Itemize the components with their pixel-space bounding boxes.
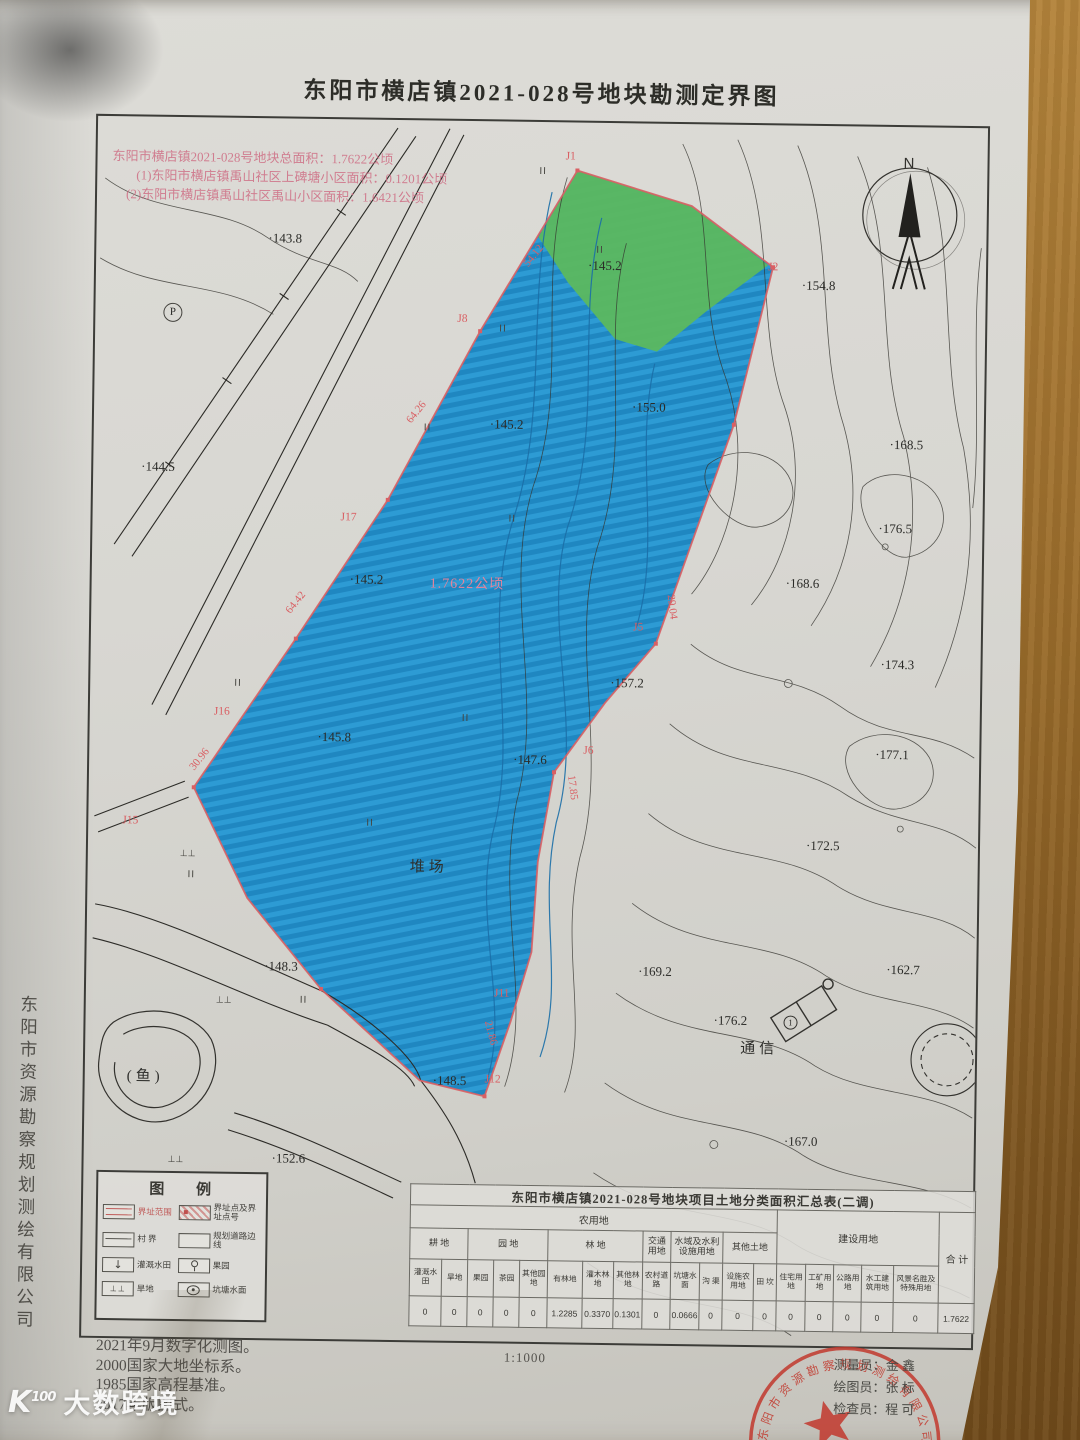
table-column-header: 灌溉水田 [409, 1259, 442, 1296]
map-label: ·176.5 [878, 521, 912, 537]
plot-area-notes: 东阳市横店镇2021-028号地块总面积：1.7622公顷(1)东阳市横店镇禹山… [112, 146, 583, 210]
table-value-cell: 0.3370 [581, 1298, 613, 1328]
table-column-header: 工矿用地 [805, 1264, 834, 1301]
map-label: II [187, 869, 195, 880]
map-label: 1 [783, 1015, 797, 1029]
land-classification-table: 东阳市横店镇2021-028号地块项目土地分类面积汇总表(二调) 农用地 建设用… [408, 1183, 976, 1334]
legend-item-label: 界址点及界址点号 [213, 1204, 261, 1223]
map-label: J5 [633, 621, 643, 633]
document-content: 东阳市横店镇2021-028号地块勘测定界图 东阳市资源勘察规划测绘有限公司 [0, 0, 1080, 1440]
photo-of-survey-document: 东阳市横店镇2021-028号地块勘测定界图 东阳市资源勘察规划测绘有限公司 [0, 0, 1080, 1440]
map-label: II [596, 245, 604, 256]
table-column-header: 设施农用地 [722, 1263, 754, 1300]
map-label: ·148.5 [433, 1073, 467, 1089]
map-label: ·143.8 [268, 230, 302, 246]
table-column-header: 农村道路 [642, 1262, 671, 1299]
legend-symbol-icon [177, 1282, 209, 1297]
map-labels: ·143.8·144.5·145.2·145.2·145.2·145.8·147… [81, 116, 988, 1348]
legend-item: 旱地 [102, 1281, 174, 1297]
table-value-cell: 0 [441, 1296, 467, 1326]
map-label: II [234, 678, 242, 689]
table-column-header: 坑塘水面 [670, 1262, 700, 1299]
watermark-text: 大数跨境 [63, 1391, 179, 1418]
map-label: J2 [768, 261, 778, 273]
map-label: ·169.2 [638, 963, 672, 979]
map-label: 29.04 [665, 594, 680, 620]
map-label: P [163, 303, 182, 322]
map-label: J11 [494, 987, 510, 999]
table-group-construction: 建设用地 [777, 1210, 940, 1266]
map-label: ⊥⊥ [180, 849, 196, 859]
legend-item-label: 坑塘水面 [212, 1286, 246, 1296]
table-column-header: 沟 渠 [699, 1263, 722, 1300]
map-label: ·145.2 [588, 258, 622, 274]
map-label: ·177.1 [875, 747, 909, 763]
legend-item: 规划道路边线 [178, 1231, 261, 1251]
legend-symbol-icon [178, 1233, 210, 1248]
map-label: ·144.5 [141, 458, 175, 474]
paper-sheet: 东阳市横店镇2021-028号地块勘测定界图 东阳市资源勘察规划测绘有限公司 [0, 0, 1080, 1440]
map-label: J17 [340, 511, 356, 523]
table-value-cell: 0.0666 [670, 1299, 700, 1329]
signature-line: 测量员：金 鑫 [834, 1354, 916, 1377]
legend-item: 坑塘水面 [177, 1282, 260, 1298]
map-label: ·147.6 [513, 752, 547, 768]
table-value-cell: 0 [699, 1300, 722, 1330]
table-column-header: 旱地 [441, 1259, 468, 1296]
map-label: ·145.8 [317, 729, 351, 745]
map-label: II [499, 323, 507, 334]
map-label: ·152.6 [271, 1150, 305, 1166]
legend-symbol-icon [103, 1204, 135, 1219]
map-label: II [300, 995, 308, 1006]
table-column-header: 风景名胜及特殊用地 [893, 1266, 939, 1304]
map-label: J16 [214, 705, 230, 717]
legend-symbol-icon [102, 1281, 134, 1296]
map-label: ·174.3 [880, 657, 914, 673]
legend-symbol-icon [102, 1257, 134, 1272]
table-subgroup-header: 其他土地 [723, 1232, 778, 1264]
page-title: 东阳市横店镇2021-028号地块勘测定界图 [96, 68, 986, 114]
map-label: II [508, 514, 516, 525]
table-column-header: 果园 [467, 1260, 494, 1297]
table-group-total: 合 计 [938, 1212, 975, 1303]
map-label: ·155.0 [632, 399, 666, 415]
map-label: 17.85 [565, 775, 580, 801]
map-label: ·148.3 [264, 958, 298, 974]
legend-title: 图 例 [113, 1177, 261, 1200]
legend-box: 图 例 界址范围 界址点及界址点号 村 界 [94, 1170, 268, 1322]
table-subgroup-header: 水域及水利设施用地 [671, 1231, 723, 1263]
map-label: ⊥⊥ [216, 996, 232, 1006]
table-value-cell: 0 [519, 1297, 547, 1327]
signature-block: 测量员：金 鑫绘图员：张 标检查员：程 可 [833, 1354, 915, 1421]
legend-item-label: 旱地 [137, 1285, 154, 1295]
map-label: (鱼) [127, 1064, 164, 1086]
legend-item: 灌溉水田 [102, 1257, 174, 1273]
table-value-cell: 1.2285 [547, 1298, 582, 1328]
map-label: ·157.2 [610, 675, 644, 691]
map-label: 54.12 [521, 242, 546, 269]
table-subgroup-header: 园 地 [468, 1229, 549, 1261]
map-label: ·145.2 [350, 571, 384, 587]
map-label: 通信 [740, 1037, 778, 1059]
map-label: ·172.5 [806, 838, 840, 854]
map-label: 1.7622公顷 [430, 572, 505, 593]
table-column-header: 田 坎 [753, 1264, 776, 1301]
map-label: II [366, 818, 374, 829]
map-label: ·168.5 [890, 437, 924, 453]
survey-map: ·143.8·144.5·145.2·145.2·145.2·145.8·147… [79, 114, 990, 1350]
table-column-header: 有林地 [547, 1261, 582, 1298]
table-value-cell: 0 [642, 1299, 670, 1329]
company-name-vertical: 东阳市资源勘察规划测绘有限公司 [12, 995, 42, 1333]
map-label: 64.42 [283, 589, 308, 616]
legend-item: 果园 [178, 1258, 261, 1274]
watermark: K100 大数跨境 [8, 1388, 179, 1418]
map-label: J8 [457, 313, 467, 325]
table-column-header: 公路用地 [833, 1265, 862, 1302]
table-subgroup-header: 耕 地 [410, 1228, 469, 1260]
signature-line: 绘图员：张 标 [833, 1376, 915, 1399]
map-label: 堆场 [410, 855, 448, 877]
map-label: J6 [583, 745, 593, 757]
map-label: ·168.6 [786, 575, 820, 591]
signature-line: 检查员：程 可 [833, 1398, 915, 1421]
map-label: ·167.0 [784, 1133, 818, 1149]
table-value-cell: 0 [467, 1297, 493, 1327]
legend-symbol-icon [178, 1258, 210, 1273]
table-value-cell: 0.1301 [613, 1299, 643, 1329]
map-label: ·154.8 [802, 278, 836, 294]
map-note-line: 2021年9月数字化测图。 [96, 1336, 259, 1358]
table-value-cell: 0 [493, 1297, 519, 1327]
map-note-line: 2000国家大地坐标系。 [96, 1355, 259, 1377]
map-label: 30.96 [187, 746, 212, 773]
legend-item-label: 果园 [213, 1262, 230, 1272]
table-column-header: 住宅用地 [776, 1264, 806, 1301]
watermark-logo: K100 [8, 1388, 55, 1418]
table-column-header: 水工建筑用地 [861, 1265, 893, 1302]
map-label: ·145.2 [490, 416, 524, 432]
map-label: II [424, 422, 432, 433]
legend-item-label: 界址范围 [138, 1207, 172, 1217]
legend-symbol-icon [102, 1232, 134, 1247]
legend-symbol-icon [178, 1205, 210, 1220]
table-column-header: 其他林地 [613, 1262, 643, 1299]
table-column-header: 茶园 [493, 1260, 520, 1297]
legend-item-label: 规划道路边线 [213, 1231, 261, 1250]
legend-item-label: 灌溉水田 [137, 1261, 171, 1271]
table-subgroup-header: 交通用地 [643, 1231, 672, 1262]
table-column-header: 灌木林地 [582, 1261, 614, 1298]
map-label: II [462, 713, 470, 724]
legend-item: 界址点及界址点号 [178, 1203, 261, 1223]
table-value-cell: 0 [409, 1296, 442, 1326]
legend-item: 界址范围 [103, 1202, 175, 1222]
legend-item: 村 界 [102, 1230, 174, 1250]
map-label: 21.86 [482, 1019, 500, 1046]
map-label: ·162.7 [886, 962, 920, 978]
map-scale: 1:1000 [504, 1350, 546, 1367]
map-label: J15 [122, 814, 138, 826]
table-column-header: 其他园地 [519, 1260, 548, 1297]
map-label: ·176.2 [713, 1013, 747, 1029]
map-label: J12 [485, 1073, 501, 1085]
map-label: N [903, 155, 914, 172]
map-label: ⊥⊥ [167, 1155, 183, 1165]
table-subgroup-header: 林 地 [548, 1230, 643, 1262]
legend-item-label: 村 界 [137, 1235, 156, 1245]
legend-items: 界址范围 界址点及界址点号 村 界 规划道路边线 [102, 1202, 261, 1299]
